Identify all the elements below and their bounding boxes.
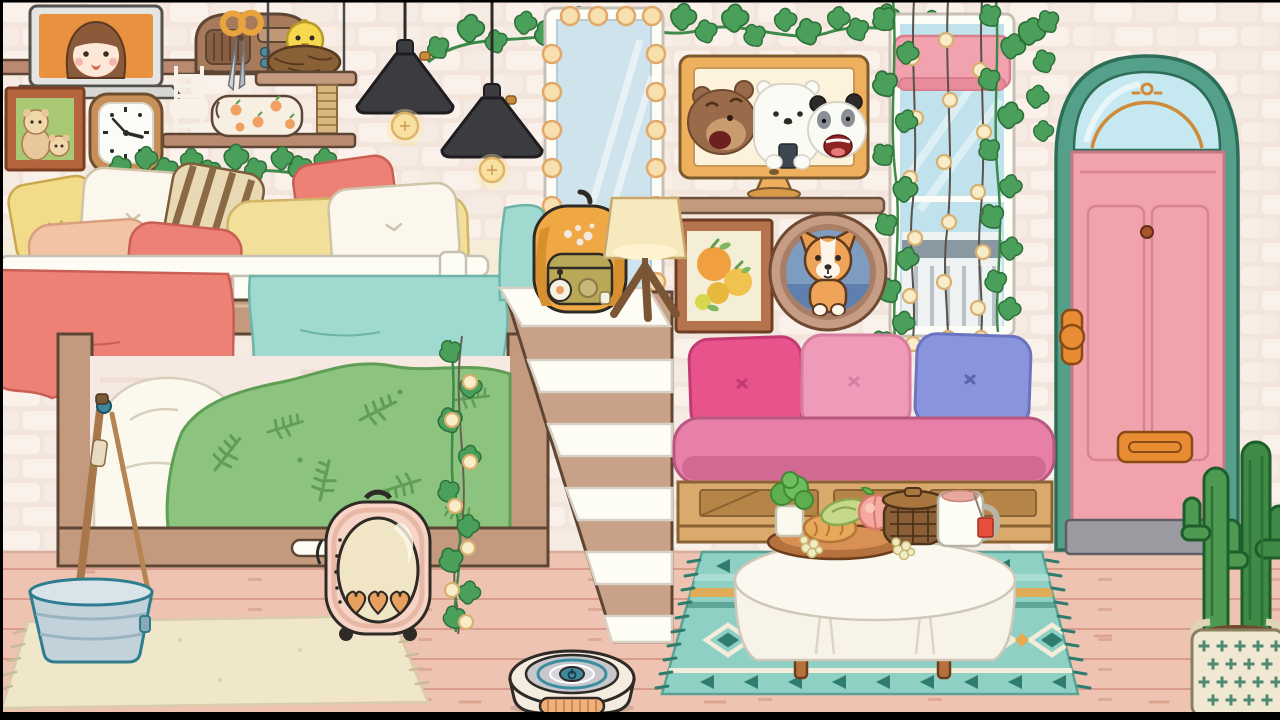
cushion-pink[interactable] (802, 335, 910, 429)
laptop[interactable] (12, 6, 180, 98)
family-portrait[interactable] (6, 88, 84, 170)
letterbox-left (0, 0, 3, 720)
door-slab[interactable] (1072, 152, 1224, 524)
teabag-tag (978, 518, 993, 537)
stair-tread[interactable] (566, 488, 672, 520)
bear-badge (579, 279, 597, 297)
picnic-basket[interactable] (883, 488, 943, 544)
letterbox-bottom (0, 712, 1280, 720)
door-handle[interactable] (1060, 310, 1084, 364)
cactus-basket (1192, 622, 1280, 716)
oranges-painting[interactable] (676, 220, 772, 332)
room-scene (0, 0, 1280, 720)
tv-shelf[interactable] (666, 198, 884, 213)
letterbox-top (0, 0, 1280, 3)
bear-panda (808, 94, 866, 158)
stair-tread[interactable] (604, 616, 672, 642)
scene-canvas (0, 0, 1280, 720)
bear-grizzly (688, 81, 756, 154)
carrier-hearts (347, 592, 409, 614)
door-mail-slot[interactable] (1118, 432, 1192, 462)
stair-tread[interactable] (586, 552, 672, 584)
door-peephole (1141, 226, 1153, 238)
stair-tread[interactable] (528, 360, 672, 392)
tv-three-bears[interactable] (680, 56, 868, 200)
robot-vacuum[interactable] (510, 651, 634, 715)
bunk-bed[interactable] (0, 153, 548, 566)
dog-porthole-bed[interactable] (770, 214, 886, 330)
cushion-periwinkle[interactable] (914, 333, 1031, 429)
round-table[interactable] (735, 540, 1015, 678)
stair-tread[interactable] (548, 424, 672, 456)
pencil-case[interactable] (212, 96, 302, 136)
